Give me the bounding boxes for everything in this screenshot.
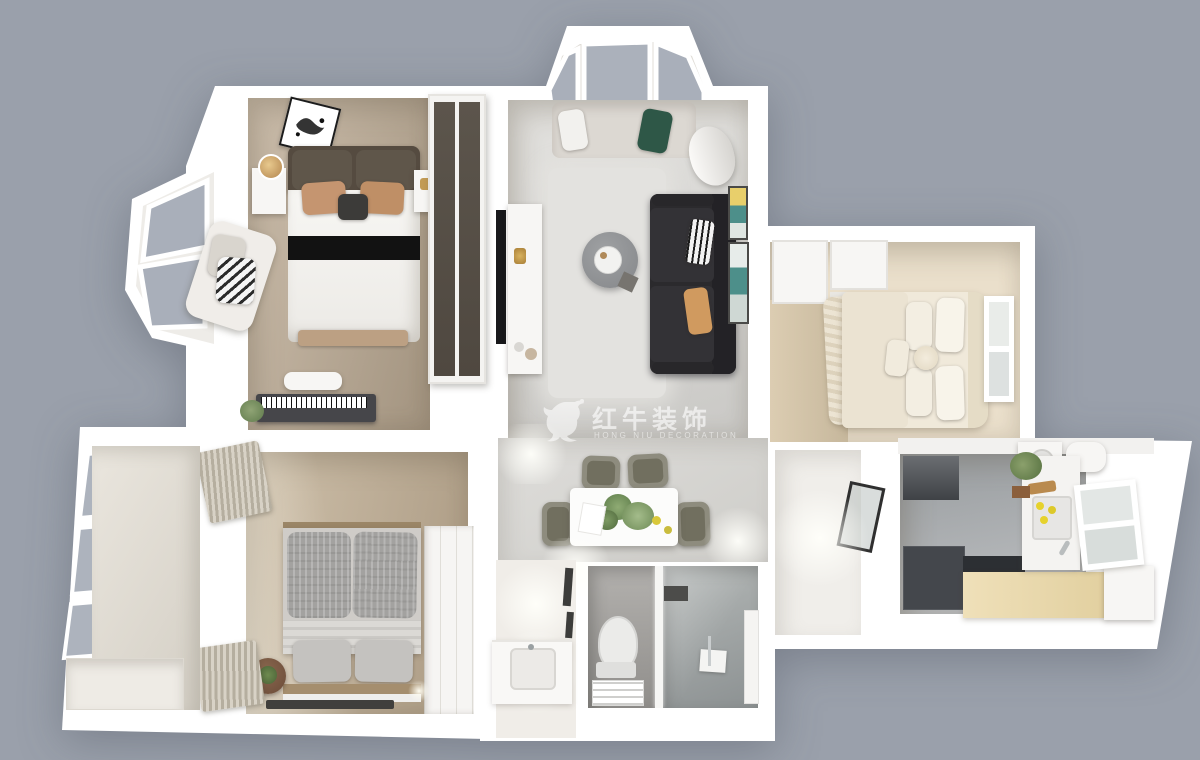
- black-runner-blanket: [288, 236, 420, 260]
- wall-control-box: [664, 586, 688, 601]
- wall-art-frame: [728, 242, 749, 324]
- cream-pillow: [906, 302, 932, 350]
- faucet: [1058, 540, 1070, 556]
- placemat-paper: [578, 502, 607, 536]
- wood-shelf: [1012, 486, 1030, 498]
- serving-tray: [594, 246, 622, 274]
- dining-chair: [581, 455, 620, 490]
- kitchen-window: [1074, 479, 1145, 571]
- cutting-board: [1027, 480, 1056, 495]
- piano-stool: [284, 372, 342, 390]
- wardrobe-door-panel: [459, 102, 480, 376]
- ceiling-light-glow: [768, 488, 872, 588]
- gray-pillow: [355, 639, 414, 682]
- small-pillow: [884, 339, 910, 377]
- slatted-rack: [592, 680, 644, 706]
- faucet: [528, 644, 534, 650]
- refrigerator: [903, 546, 965, 610]
- vase-decor: [525, 348, 537, 360]
- window-glass: [989, 302, 1009, 346]
- curtain-drapes: [193, 640, 265, 712]
- vanity-counter: [492, 640, 572, 704]
- foot-throw: [298, 330, 408, 346]
- tv-screen: [496, 210, 506, 344]
- shower-panel: [699, 649, 726, 673]
- gold-decor: [514, 248, 526, 264]
- wall-niche: [744, 610, 759, 704]
- piano: [256, 394, 376, 422]
- chevron-pillow: [215, 256, 256, 305]
- balcony-storage-box: [66, 658, 184, 710]
- gray-bed: [283, 522, 421, 702]
- potted-plant: [1010, 452, 1042, 480]
- dining-chair: [627, 453, 669, 489]
- window-glass: [989, 352, 1009, 396]
- table-lamp: [258, 154, 284, 180]
- knit-blanket: [352, 531, 417, 618]
- fruit: [664, 526, 672, 534]
- cream-pillow: [906, 368, 932, 416]
- dark-accent-pillow: [338, 194, 368, 220]
- ceiling-light-glow: [700, 508, 776, 574]
- wood-counter: [963, 572, 1105, 618]
- runner-rug: [266, 700, 394, 709]
- toilet-tank: [596, 662, 636, 678]
- wardrobe-door-panel: [434, 102, 455, 376]
- closet-cabinet: [772, 240, 828, 304]
- right-bedroom-window: [984, 296, 1014, 402]
- wardrobe: [424, 526, 474, 714]
- fruit: [652, 516, 661, 525]
- ceiling-light-glow: [488, 424, 574, 484]
- kitchen-cabinet: [1104, 566, 1154, 620]
- round-pillow: [914, 346, 938, 370]
- range-hood: [903, 456, 959, 500]
- shower-pipe: [708, 636, 711, 666]
- sofa-armrest: [652, 194, 714, 206]
- window-glass: [1084, 525, 1137, 564]
- gray-pillow: [293, 639, 352, 682]
- cream-pillow: [935, 298, 965, 353]
- floor-plan-scene: 红牛装饰 HONG NIU DECORATION: [0, 0, 1200, 760]
- piano-keys: [261, 397, 367, 408]
- vase-decor: [514, 342, 524, 352]
- wall-art-frame: [728, 186, 748, 240]
- closet-cabinet: [830, 240, 888, 290]
- wardrobe: [428, 94, 486, 384]
- headboard-wood: [283, 684, 421, 694]
- master-bed: [288, 146, 420, 346]
- bay-window-glass: [143, 181, 207, 260]
- centerpiece-plant: [622, 502, 654, 530]
- window-glass: [1080, 486, 1133, 525]
- cream-pillow: [935, 366, 965, 421]
- lemon: [1048, 506, 1056, 514]
- knit-blanket: [287, 532, 351, 618]
- lemon: [1040, 516, 1048, 524]
- glass-partition: [655, 566, 663, 708]
- cream-bed: [842, 292, 988, 428]
- tray-item: [600, 252, 607, 259]
- wash-basin: [510, 648, 556, 690]
- tv-console: [508, 204, 542, 374]
- bedside-lamp-glow: [408, 680, 430, 702]
- sofa-armrest: [652, 362, 714, 374]
- potted-plant: [240, 400, 264, 422]
- lemon: [1036, 502, 1044, 510]
